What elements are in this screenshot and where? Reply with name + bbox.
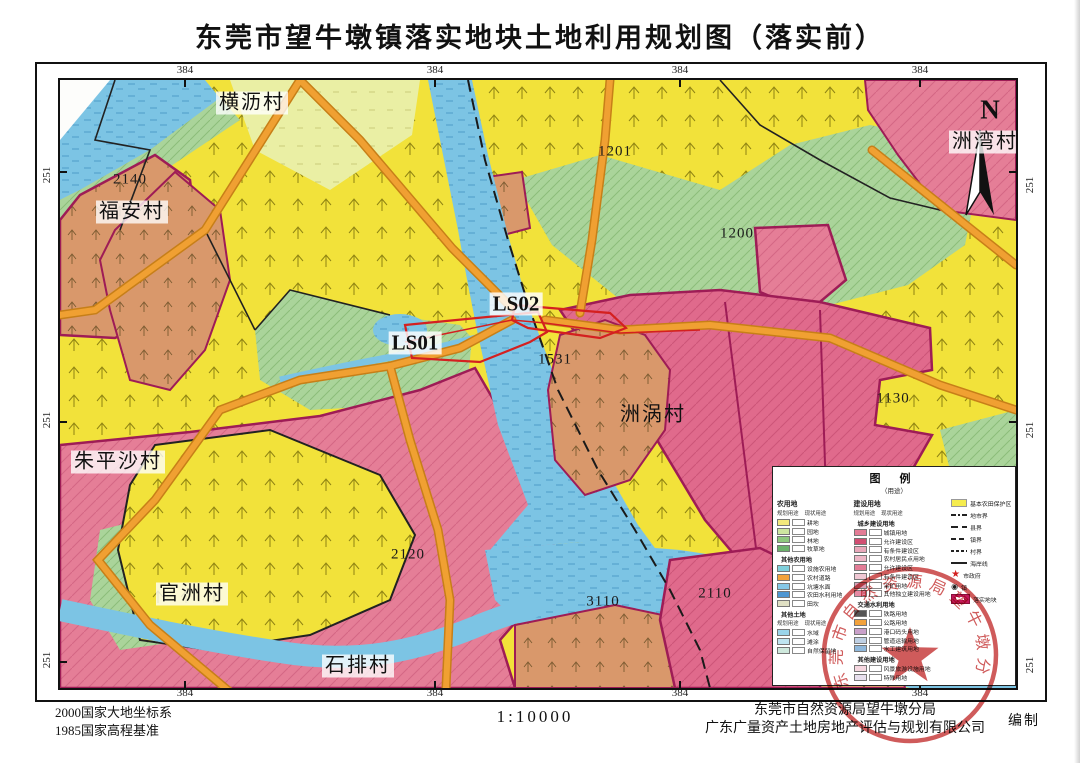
legend-swatch-planned (854, 538, 867, 545)
legend-swatch-planned (854, 610, 867, 617)
legend-swatch-current (869, 645, 882, 652)
map-scale: 1:10000 (455, 707, 615, 727)
legend-swatch-planned (777, 565, 790, 572)
implementation-plot-swatch (951, 594, 970, 604)
legend-swatch-planned (854, 619, 867, 626)
legend-swatch-current (792, 638, 805, 645)
legend-swatch-current (792, 536, 805, 543)
legend-swatch-current (792, 647, 805, 654)
legend-swatch-current (869, 637, 882, 644)
legend-section-header: 建设用地 (854, 498, 948, 508)
legend-item: 农村道路 (777, 573, 850, 582)
legend-item: 管道运输用地 (854, 636, 948, 645)
legend-item: 特殊用地 (854, 673, 948, 682)
coord-label-top: 384 (427, 64, 444, 76)
village-boundary-line-icon (951, 550, 967, 552)
legend-item: 坑塘水面 (777, 582, 850, 591)
legend-swatch-current (792, 629, 805, 636)
legend-item-label: 耕地 (807, 518, 819, 527)
site-label-ls02: LS02 (490, 292, 543, 315)
legend-swatch-planned (777, 536, 790, 543)
plot-number-2140: 2140 (113, 172, 147, 189)
legend-item: 牧草地 (777, 544, 850, 553)
legend-item-label: 基本农田保护区 (970, 499, 1011, 508)
coord-label-left: 251 (41, 652, 53, 669)
coord-label-right: 251 (1024, 177, 1036, 194)
plot-number-1531: 1531 (538, 352, 572, 369)
datum-info: 2000国家大地坐标系 1985国家高程基准 (55, 704, 172, 739)
legend-item-town-boundary: 镇界 (951, 533, 1011, 545)
legend-swatch-planned (854, 529, 867, 536)
legend-item-label: 市政府 (963, 571, 981, 580)
county-boundary-line-icon (951, 526, 967, 528)
legend-item-label: 农村道路 (807, 573, 831, 582)
legend-swatch-planned (777, 545, 790, 552)
legend-swatch-current (869, 610, 882, 617)
legend-swatch-current (792, 528, 805, 535)
legend-item-label: 特殊用地 (884, 673, 908, 682)
city-government-star-icon: ★ (951, 570, 960, 580)
village-label-hengli: 横沥村 (216, 92, 288, 115)
legend-title: 图 例 (777, 470, 1011, 486)
legend-farmland-zone-swatch (951, 499, 967, 507)
scanned-planning-map-page: 东莞市望牛墩镇落实地块土地利用规划图（落实前） 384 384 384 384 … (0, 0, 1080, 763)
legend-item-label: 田坎 (807, 599, 819, 608)
legend-swatch-current (792, 519, 805, 526)
legend-item-label: 设施农用地 (807, 564, 836, 573)
town-government-circle-icon: ◉ (951, 583, 958, 591)
village-label-fuan: 福安村 (96, 201, 168, 224)
legend-item: 有条件建设区 (854, 572, 948, 581)
legend-item-label: 水域 (807, 628, 819, 637)
legend-swatch-current (792, 583, 805, 590)
legend-group-header: 城乡建设用地 (858, 519, 948, 528)
village-label-shipai: 石排村 (322, 655, 394, 678)
legend-swatch-current (869, 665, 882, 672)
agency-info: 东莞市自然资源局望牛墩分局 广东广量资产土地房地产评估与规划有限公司 (705, 702, 985, 738)
legend-item: 耕地 (777, 518, 850, 527)
legend-item-farmland-zone: 基本农田保护区 (951, 497, 1011, 509)
plot-number-1200: 1200 (720, 226, 754, 243)
legend-item-label: 林地 (807, 536, 819, 545)
legend-subcol-planned: 规划用途 (777, 509, 799, 517)
coord-label-right: 251 (1024, 657, 1036, 674)
legend-item-city-gov: ★ 市政府 (951, 569, 1011, 581)
map-canvas: 横沥村 福安村 朱平沙村 官洲村 石排村 洲湾村 洲涡村 2140 1201 1… (58, 78, 1018, 690)
legend-item: 水域 (777, 628, 850, 637)
legend-swatch-planned (777, 583, 790, 590)
legend-subcol-current: 现状用途 (805, 619, 827, 627)
legend-item-label: 海岸线 (970, 559, 988, 568)
legend-item-plot: 落实地块 (951, 593, 1011, 605)
coord-label-left: 251 (41, 167, 53, 184)
legend-swatch-current (869, 582, 882, 589)
legend-swatch-planned (777, 647, 790, 654)
legend-item-label: 水工建筑用地 (884, 644, 919, 653)
legend-subcol-current: 现状用途 (881, 509, 903, 517)
datum-line-2: 1985国家高程基准 (55, 722, 172, 740)
legend-swatch-planned (854, 674, 867, 681)
legend-item-label: 园地 (807, 527, 819, 536)
legend-item: 设施农用地 (777, 564, 850, 573)
agency-line-2: 广东广量资产土地房地产评估与规划有限公司 (705, 720, 985, 738)
page-title: 东莞市望牛墩镇落实地块土地利用规划图（落实前） (0, 16, 1080, 55)
legend-swatch-current (869, 555, 882, 562)
legend-item-label: 自然保留地 (807, 646, 836, 655)
legend-item: 铁路用地 (854, 609, 948, 618)
legend-item: 其他独立建设用地 (854, 590, 948, 599)
legend-section-header: 农用地 (777, 498, 850, 508)
plot-number-2120: 2120 (391, 547, 425, 564)
legend-item: 公路用地 (854, 618, 948, 627)
legend-item-label: 落实地块 (973, 595, 997, 604)
city-boundary-line-icon (951, 514, 967, 516)
plot-number-2110: 2110 (698, 586, 731, 603)
legend-item-coastline: 海岸线 (951, 557, 1011, 569)
legend-swatch-current (869, 573, 882, 580)
north-label: N (980, 95, 1000, 126)
legend-item: 林地 (777, 536, 850, 545)
site-label-ls01: LS01 (389, 331, 442, 354)
coord-label-top: 384 (912, 64, 929, 76)
legend-item-label: 有条件建设区 (884, 546, 919, 555)
legend-item-label: 坑塘水面 (807, 582, 831, 591)
legend-swatch-planned (854, 546, 867, 553)
coord-label-top: 384 (177, 64, 194, 76)
legend-swatch-planned (854, 645, 867, 652)
legend-subcol-current: 现状用途 (805, 509, 827, 517)
legend-swatch-current (869, 546, 882, 553)
legend-item: 采矿用地 (854, 581, 948, 590)
legend-item: 有条件建设区 (854, 546, 948, 555)
legend-item-label: 滩涂 (807, 637, 819, 646)
legend-item-label: 镇 (961, 583, 967, 592)
coord-label-right: 251 (1024, 422, 1036, 439)
plot-number-1130: 1130 (876, 391, 909, 408)
village-label-zhouwo: 洲涡村 (617, 404, 689, 427)
legend-group-header: 其他农用地 (781, 555, 850, 564)
legend-item: 田坎 (777, 599, 850, 608)
legend-swatch-planned (777, 528, 790, 535)
legend-swatch-planned (854, 665, 867, 672)
legend-swatch-planned (854, 564, 867, 571)
village-label-zhouwan: 洲湾村 (949, 131, 1018, 154)
village-label-guanzhou: 官洲村 (156, 583, 228, 606)
legend-swatch-planned (854, 573, 867, 580)
legend-item-city-boundary: 地市界 (951, 509, 1011, 521)
legend-item-village-boundary: 村界 (951, 545, 1011, 557)
legend-item-label: 村界 (970, 547, 982, 556)
legend-item-label: 农村居民点用地 (884, 554, 925, 563)
legend-item-label: 公路用地 (884, 618, 908, 627)
legend-item-town-gov: ◉ 镇 (951, 581, 1011, 593)
legend-item-label: 农田水利用地 (807, 590, 842, 599)
coord-label-top: 384 (672, 64, 689, 76)
legend-item: 港口码头用地 (854, 627, 948, 636)
legend-item-label: 地市界 (970, 511, 988, 520)
legend-swatch-current (869, 529, 882, 536)
legend-swatch-current (869, 538, 882, 545)
legend-swatch-planned (854, 590, 867, 597)
legend-swatch-planned (854, 582, 867, 589)
legend-item-county-boundary: 县界 (951, 521, 1011, 533)
legend-item: 允许建设区 (854, 563, 948, 572)
legend-swatch-planned (854, 555, 867, 562)
legend-item-label: 镇界 (970, 535, 982, 544)
legend-item: 水工建筑用地 (854, 645, 948, 654)
legend-swatch-planned (854, 637, 867, 644)
legend-col-symbols: 基本农田保护区 地市界 县界 镇界 (951, 497, 1011, 682)
legend-swatch-current (792, 591, 805, 598)
legend-swatch-planned (777, 638, 790, 645)
legend-subcol-planned: 规划用途 (854, 509, 876, 517)
legend-swatch-planned (777, 574, 790, 581)
agency-line-1: 东莞市自然资源局望牛墩分局 (705, 702, 985, 720)
legend-swatch-current (869, 674, 882, 681)
legend-item-label: 允许建设区 (884, 563, 913, 572)
legend-item-label: 铁路用地 (884, 609, 908, 618)
coord-label-left: 251 (41, 412, 53, 429)
legend-item-label: 城镇用地 (884, 528, 908, 537)
legend-group-header: 其他土地 (781, 610, 850, 619)
legend-item-label: 允许建设区 (884, 537, 913, 546)
legend-swatch-current (869, 590, 882, 597)
legend-box: 图 例 （用途） 农用地 规划用途 现状用途 耕地 (772, 466, 1016, 686)
legend-swatch-current (869, 628, 882, 635)
legend-group-header: 交通水利用地 (858, 600, 948, 609)
coastline-line-icon (951, 562, 967, 564)
legend-group-header: 其他建设用地 (858, 655, 948, 664)
legend-item-label: 港口码头用地 (884, 627, 919, 636)
legend-swatch-current (792, 565, 805, 572)
legend-item-label: 有条件建设区 (884, 572, 919, 581)
legend-swatch-current (869, 619, 882, 626)
legend-swatch-planned (777, 629, 790, 636)
legend-col-construction: 建设用地 规划用途 现状用途 城乡建设用地 城镇用地 (854, 497, 948, 682)
legend-item-label: 采矿用地 (884, 581, 908, 590)
legend-item-label: 其他独立建设用地 (884, 589, 931, 598)
legend-col-agricultural: 农用地 规划用途 现状用途 耕地 园 (777, 497, 850, 682)
legend-subtitle: （用途） (777, 485, 1011, 495)
plot-number-3110: 3110 (586, 594, 619, 611)
legend-item-label: 牧草地 (807, 544, 825, 553)
legend-item: 滩涂 (777, 637, 850, 646)
legend-swatch-current (792, 545, 805, 552)
legend-swatch-planned (854, 628, 867, 635)
legend-swatch-current (869, 564, 882, 571)
town-boundary-line-icon (951, 538, 967, 540)
legend-swatch-current (792, 574, 805, 581)
legend-item: 自然保留地 (777, 646, 850, 655)
legend-swatch-planned (777, 519, 790, 526)
legend-swatch-planned (777, 591, 790, 598)
legend-item: 园地 (777, 527, 850, 536)
legend-item: 允许建设区 (854, 537, 948, 546)
legend-item: 风景旅游设施用地 (854, 664, 948, 673)
legend-item-label: 县界 (970, 523, 982, 532)
legend-swatch-current (792, 600, 805, 607)
legend-item-label: 管道运输用地 (884, 636, 919, 645)
legend-item: 农村居民点用地 (854, 554, 948, 563)
legend-item: 农田水利用地 (777, 591, 850, 600)
legend-swatch-planned (777, 600, 790, 607)
plot-number-1201: 1201 (598, 144, 632, 161)
village-label-zhupingsha: 朱平沙村 (71, 451, 165, 474)
legend-item: 城镇用地 (854, 528, 948, 537)
compiled-label: 编制 (1008, 710, 1040, 730)
datum-line-1: 2000国家大地坐标系 (55, 704, 172, 722)
legend-subcol-planned: 规划用途 (777, 619, 799, 627)
legend-item-label: 风景旅游设施用地 (884, 664, 931, 673)
